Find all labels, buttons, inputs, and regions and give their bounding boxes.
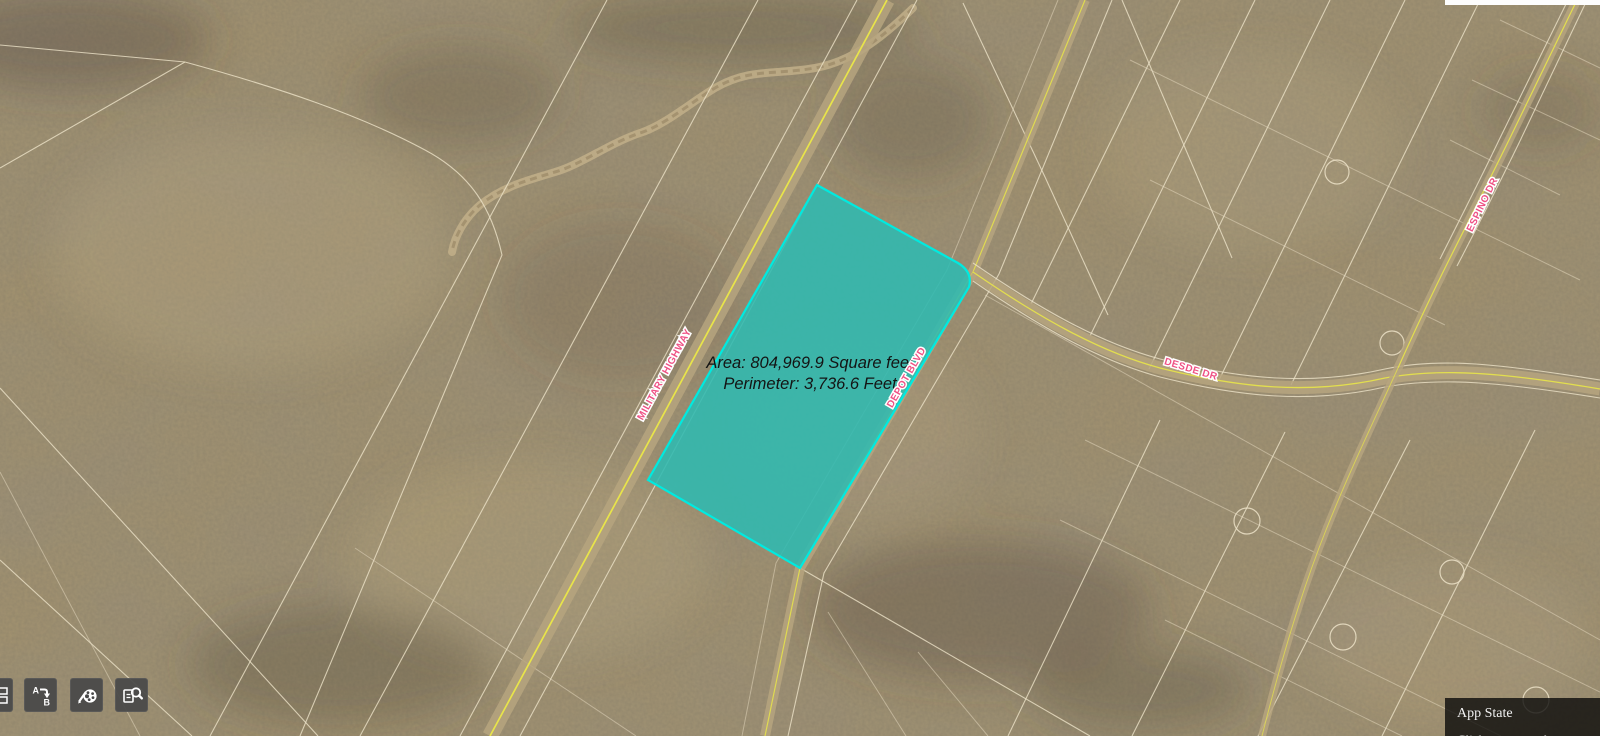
directions-button[interactable]: A B <box>24 678 57 712</box>
clipped-tool-button[interactable] <box>0 678 13 712</box>
app-state-title: App State <box>1457 706 1600 722</box>
app-state-message: Click to restore the map extent <box>1457 732 1600 736</box>
draw-palette-icon <box>75 683 99 707</box>
directions-icon: A B <box>29 683 53 707</box>
query-search-icon <box>120 683 144 707</box>
svg-text:B: B <box>43 698 50 708</box>
draw-button[interactable] <box>70 678 103 712</box>
parcel-area-label: Area: 804,969.9 Square feet <box>705 354 915 372</box>
clipped-tool-icon <box>0 683 9 707</box>
map-application-window: Area: 804,969.9 Square feet Perimeter: 3… <box>0 0 1600 736</box>
parcel-perimeter-label: Perimeter: 3,736.6 Feet <box>723 375 898 393</box>
satellite-map[interactable]: Area: 804,969.9 Square feet Perimeter: 3… <box>0 0 1600 736</box>
app-state-panel[interactable]: App State Click to restore the map exten… <box>1445 698 1600 736</box>
query-button[interactable] <box>115 678 148 712</box>
svg-text:A: A <box>32 686 39 696</box>
top-right-panel-edge <box>1445 0 1600 5</box>
